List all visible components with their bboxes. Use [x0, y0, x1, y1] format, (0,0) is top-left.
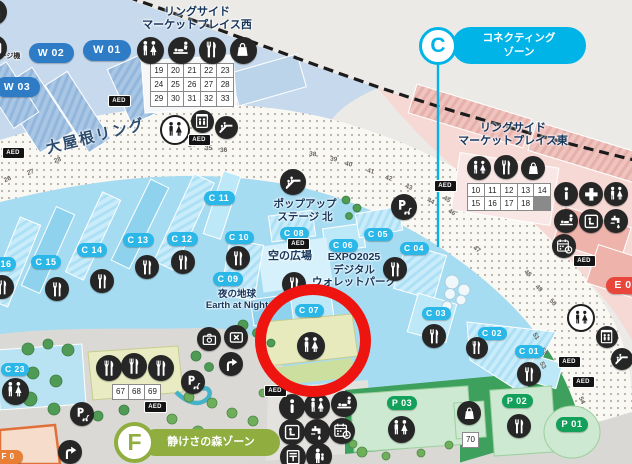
f0-pill: F 0	[0, 450, 23, 464]
info-icon	[279, 394, 305, 420]
restaurant-icon-glyph	[174, 253, 193, 272]
p02-pill: P 02	[502, 394, 533, 408]
stall-number: 22	[201, 64, 217, 77]
aed-badge: AED	[144, 401, 167, 413]
connecting-zone-line1: コネクティング	[452, 32, 586, 45]
ring-column-number: 51	[531, 332, 541, 342]
aed-badge: AED	[188, 134, 211, 146]
stall-number: 25	[168, 78, 184, 91]
rest-space-icon-glyph	[582, 212, 601, 231]
babycare-icon-glyph	[334, 394, 354, 414]
aed-badge: AED	[572, 376, 595, 388]
stall-number: 19	[151, 64, 167, 77]
rest-space-icon	[579, 209, 603, 233]
restroom-ring-icon-glyph	[572, 309, 591, 328]
restaurant-icon	[226, 246, 250, 270]
stall-number: 18	[518, 197, 534, 209]
elevator-icon	[191, 110, 214, 133]
rest-space-icon	[279, 419, 305, 445]
stall-number: 14	[534, 184, 550, 196]
forest-zone-badge: F	[114, 422, 155, 463]
c06-pill: C 06	[329, 239, 358, 252]
restaurant-icon	[96, 355, 122, 381]
stall-number: 10	[468, 184, 484, 196]
c05-pill: C 05	[364, 228, 393, 241]
map-overlay: C コネクティング ゾーン F 静けさの森ゾーン リングサイド マーケットプレイ…	[0, 0, 632, 464]
forest-stall-numbers: 676869	[112, 384, 161, 400]
gate-icon-glyph	[0, 2, 4, 22]
ring-column-number: 36	[220, 147, 228, 154]
escalator-icon	[611, 348, 632, 370]
c13-pill: C 13	[123, 233, 154, 247]
mobility-stop-icon	[70, 402, 94, 426]
mobility-stop-icon	[181, 370, 205, 394]
stall-number: 23	[217, 64, 233, 77]
c11-pill: C 11	[204, 191, 235, 205]
babycare-icon	[331, 391, 357, 417]
restaurant-icon-glyph	[48, 280, 67, 299]
mobility-stop-icon-glyph	[73, 405, 92, 424]
ring-column-number: 42	[384, 174, 393, 183]
ring-column-number: 50	[548, 297, 558, 307]
popup-stage-label: ポップアップ ステージ 北	[250, 198, 360, 223]
east-stall-numbers: 101112131415161718	[467, 183, 551, 211]
first-aid-icon	[579, 182, 603, 206]
forest-zone-pill: 静けさの森ゾーン	[142, 429, 280, 456]
charge-machine-icon-glyph	[0, 38, 4, 58]
stall-number: 30	[168, 92, 184, 105]
aed-badge: AED	[573, 255, 596, 267]
restroom-icon	[388, 416, 415, 443]
restaurant-icon	[422, 324, 446, 348]
ring-column-number: 28	[53, 156, 62, 165]
ring-column-number: 38	[309, 151, 317, 159]
water-station-icon	[604, 209, 628, 233]
elevator-icon	[596, 326, 618, 348]
mobility-stop-icon-glyph	[394, 197, 414, 217]
shop-icon-glyph	[232, 39, 253, 60]
photo-spot-icon	[197, 327, 221, 351]
stall-number: 15	[468, 197, 484, 209]
slope-arrow-icon-glyph	[61, 443, 80, 462]
info-icon	[554, 182, 578, 206]
w01-pill: W 01	[83, 40, 131, 61]
restaurant-icon-glyph	[99, 358, 119, 378]
c23-pill: C 23	[1, 363, 29, 376]
shop-icon	[230, 37, 257, 64]
restaurant-icon-glyph	[468, 339, 485, 356]
restaurant-icon	[0, 275, 14, 299]
connecting-zone-badge: C	[419, 27, 457, 65]
lost-child-icon	[306, 443, 332, 464]
restaurant-icon-glyph	[124, 356, 144, 376]
babycare-icon	[554, 209, 578, 233]
aed-badge: AED	[434, 180, 457, 192]
slope-arrow-icon	[219, 352, 243, 376]
water-station-icon-glyph	[607, 212, 626, 231]
w03-pill: W 03	[0, 77, 40, 97]
restroom-icon-glyph	[4, 380, 25, 401]
restaurant-icon-glyph	[0, 278, 11, 297]
ring-column-number: 27	[26, 168, 35, 177]
aed-badge: AED	[558, 356, 581, 368]
restaurant-icon-glyph	[229, 249, 248, 268]
restroom-icon	[2, 378, 29, 405]
restaurant-icon-glyph	[425, 327, 444, 346]
gate-icon	[0, 0, 7, 25]
shop-icon	[521, 156, 545, 180]
restaurant-icon-glyph	[138, 258, 157, 277]
west-marketplace-label: リングサイド マーケットプレイス西	[112, 6, 282, 32]
restaurant-icon-glyph	[386, 260, 405, 279]
stall-number: 20	[168, 64, 184, 77]
stall-number: 32	[201, 92, 217, 105]
c10-pill: C 10	[225, 231, 254, 244]
c15-pill: C 15	[31, 255, 61, 269]
restroom-ring-icon	[567, 304, 595, 332]
restaurant-icon-glyph	[151, 358, 171, 378]
shop-icon	[457, 401, 481, 425]
restroom-icon-glyph	[607, 185, 626, 204]
restaurant-icon	[507, 414, 531, 438]
first-aid-icon-glyph	[582, 185, 601, 204]
restaurant-icon	[135, 255, 159, 279]
restroom-icon-glyph	[470, 159, 489, 178]
stall-number: 67	[113, 385, 128, 399]
restaurant-icon	[90, 269, 114, 293]
restroom-icon-glyph	[390, 418, 411, 439]
mobility-stop-icon-glyph	[184, 373, 203, 392]
restroom-ring-icon	[160, 115, 190, 145]
c01-pill: C 01	[515, 345, 544, 358]
post-office-icon	[280, 444, 306, 464]
stall-number: 24	[151, 78, 167, 91]
ring-column-number: 48	[523, 268, 533, 278]
restaurant-icon	[466, 337, 488, 359]
escalator-icon-glyph	[283, 172, 303, 192]
shop-icon-glyph	[524, 159, 543, 178]
locker-icon	[224, 325, 248, 349]
water-station-icon-glyph	[307, 422, 327, 442]
stall-number: 21	[184, 64, 200, 77]
connecting-zone-pill: コネクティング ゾーン	[452, 27, 586, 64]
reservation-spot-icon-glyph	[555, 237, 574, 256]
restaurant-icon-glyph	[201, 39, 222, 60]
ring-column-number: 46	[447, 208, 457, 218]
babycare-icon-glyph	[170, 39, 191, 60]
ring-column-number: 44	[426, 197, 435, 206]
aed-badge: AED	[2, 147, 25, 159]
escalator-icon-glyph	[217, 118, 235, 136]
c16-pill: C 16	[0, 257, 16, 271]
p-zone-stall-numbers: 70	[462, 432, 479, 448]
restaurant-icon	[494, 155, 518, 179]
stall-number: 31	[184, 92, 200, 105]
info-icon-glyph	[282, 397, 302, 417]
lost-child-icon-glyph	[309, 446, 329, 464]
babycare-icon-glyph	[557, 212, 576, 231]
reservation-spot-icon-glyph	[332, 421, 352, 441]
reservation-spot-icon	[552, 234, 576, 258]
stall-number: 17	[501, 197, 517, 209]
restroom-icon	[604, 182, 628, 206]
aed-badge: AED	[287, 238, 310, 250]
c12-pill: C 12	[167, 232, 198, 246]
stall-number: 11	[485, 184, 501, 196]
stall-number: 16	[485, 197, 501, 209]
grand-ring-label: 大屋根リング	[36, 114, 157, 160]
restaurant-icon	[199, 37, 226, 64]
slope-arrow-icon	[58, 440, 82, 464]
restroom-icon-glyph	[139, 39, 160, 60]
elevator-icon-glyph	[598, 328, 615, 345]
stall-number: 27	[201, 78, 217, 91]
c09-pill: C 09	[213, 272, 243, 286]
restroom-icon	[467, 156, 491, 180]
ring-column-number: 49	[534, 283, 544, 293]
east-marketplace-label: リングサイド マーケットプレイス東	[426, 122, 601, 148]
stall-number: 68	[129, 385, 144, 399]
post-office-icon-glyph	[283, 447, 303, 464]
highlight-circle	[255, 284, 371, 397]
ring-column-number: 43	[404, 183, 413, 192]
ring-column-number: 26	[3, 175, 12, 184]
ring-column-number: 41	[366, 167, 375, 175]
restaurant-icon-glyph	[510, 417, 529, 436]
restaurant-icon-glyph	[497, 158, 516, 177]
aed-badge: AED	[108, 95, 131, 107]
locker-icon-glyph	[227, 328, 246, 347]
water-station-icon	[304, 419, 330, 445]
w02-pill: W 02	[29, 43, 74, 63]
rest-space-icon-glyph	[282, 422, 302, 442]
escalator-icon	[215, 116, 238, 139]
restaurant-icon	[517, 362, 541, 386]
c03-pill: C 03	[422, 307, 451, 320]
photo-spot-icon-glyph	[200, 330, 219, 349]
stall-number: 70	[463, 433, 478, 447]
escalator-icon-glyph	[613, 350, 630, 367]
ring-column-number: 47	[472, 245, 482, 255]
e0-pill: E 0	[606, 277, 632, 294]
restaurant-icon-glyph	[93, 272, 112, 291]
restaurant-icon-glyph	[520, 365, 539, 384]
slope-arrow-icon-glyph	[222, 355, 241, 374]
restroom-icon	[137, 37, 164, 64]
shop-icon-glyph	[460, 404, 479, 423]
ring-column-number: 54	[577, 396, 586, 405]
reservation-spot-icon	[329, 418, 355, 444]
west-stall-numbers: 192021222324252627282930313233	[150, 63, 234, 107]
stall-number: 33	[217, 92, 233, 105]
stall-number: 12	[501, 184, 517, 196]
stall-number: 28	[217, 78, 233, 91]
ring-column-number: 40	[344, 160, 352, 168]
restaurant-icon	[148, 355, 174, 381]
stall-number: 29	[151, 92, 167, 105]
restroom-ring-icon-glyph	[165, 120, 185, 140]
ring-column-number: 39	[330, 156, 338, 164]
c04-pill: C 04	[400, 242, 429, 255]
restaurant-icon	[121, 353, 147, 379]
escalator-icon	[280, 169, 306, 195]
c14-pill: C 14	[77, 243, 107, 257]
restroom-icon-glyph	[307, 396, 327, 416]
stall-number: 26	[184, 78, 200, 91]
stall-number: 69	[145, 385, 160, 399]
info-icon-glyph	[557, 185, 576, 204]
ring-column-number: 45	[442, 195, 452, 205]
restaurant-icon	[171, 250, 195, 274]
stall-number: 13	[518, 184, 534, 196]
restroom-icon	[304, 393, 330, 419]
restaurant-icon	[383, 257, 407, 281]
mobility-stop-icon	[391, 194, 417, 220]
restaurant-icon	[45, 277, 69, 301]
p01-pill: P 01	[556, 417, 588, 432]
expo-venue-map: C コネクティング ゾーン F 静けさの森ゾーン リングサイド マーケットプレイ…	[0, 0, 632, 464]
p03-pill: P 03	[387, 396, 417, 410]
connecting-zone-line2: ゾーン	[452, 46, 586, 59]
babycare-icon	[168, 37, 195, 64]
elevator-icon-glyph	[193, 112, 211, 130]
